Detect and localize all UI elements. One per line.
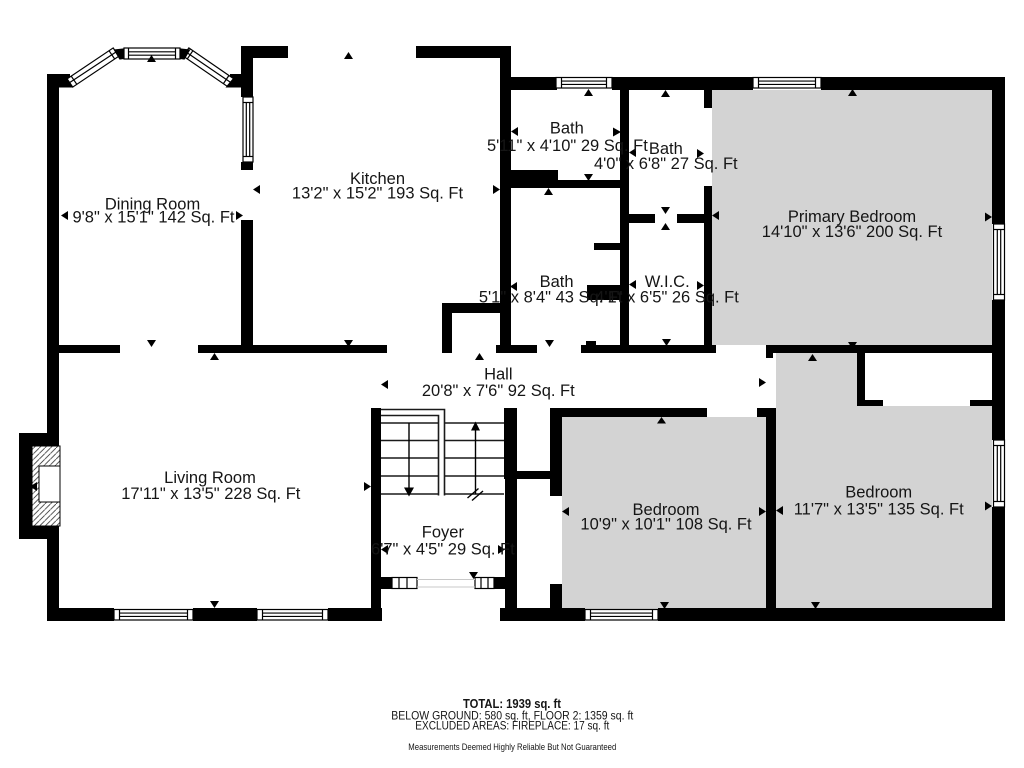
svg-text:14'10" x 13'6" 200 Sq. Ft: 14'10" x 13'6" 200 Sq. Ft bbox=[762, 223, 943, 241]
svg-text:11'7" x 13'5" 135 Sq. Ft: 11'7" x 13'5" 135 Sq. Ft bbox=[794, 501, 964, 519]
svg-text:Measurements Deemed Highly Rel: Measurements Deemed Highly Reliable But … bbox=[408, 742, 616, 752]
svg-text:Hall: Hall bbox=[484, 366, 512, 384]
svg-text:4'0" x 6'8" 27 Sq. Ft: 4'0" x 6'8" 27 Sq. Ft bbox=[594, 155, 738, 173]
svg-text:13'2" x 15'2" 193 Sq. Ft: 13'2" x 15'2" 193 Sq. Ft bbox=[292, 185, 464, 203]
svg-text:6'7" x 4'5" 29 Sq. Ft: 6'7" x 4'5" 29 Sq. Ft bbox=[371, 541, 515, 559]
svg-text:17'11" x 13'5" 228 Sq. Ft: 17'11" x 13'5" 228 Sq. Ft bbox=[121, 485, 301, 503]
svg-text:Bath: Bath bbox=[550, 120, 584, 138]
svg-text:EXCLUDED AREAS: FIREPLACE: 17: EXCLUDED AREAS: FIREPLACE: 17 sq. ft bbox=[415, 719, 609, 733]
svg-text:Foyer: Foyer bbox=[422, 524, 465, 542]
svg-text:4'1" x 6'5" 26 Sq. Ft: 4'1" x 6'5" 26 Sq. Ft bbox=[595, 289, 739, 307]
svg-text:10'9" x 10'1" 108 Sq. Ft: 10'9" x 10'1" 108 Sq. Ft bbox=[580, 516, 752, 534]
svg-text:20'8" x 7'6" 92 Sq. Ft: 20'8" x 7'6" 92 Sq. Ft bbox=[422, 382, 575, 400]
svg-text:5'11" x 4'10" 29 Sq. Ft: 5'11" x 4'10" 29 Sq. Ft bbox=[487, 137, 648, 155]
svg-text:9'8" x 15'1" 142 Sq. Ft: 9'8" x 15'1" 142 Sq. Ft bbox=[72, 209, 234, 227]
svg-text:Bedroom: Bedroom bbox=[845, 484, 912, 502]
